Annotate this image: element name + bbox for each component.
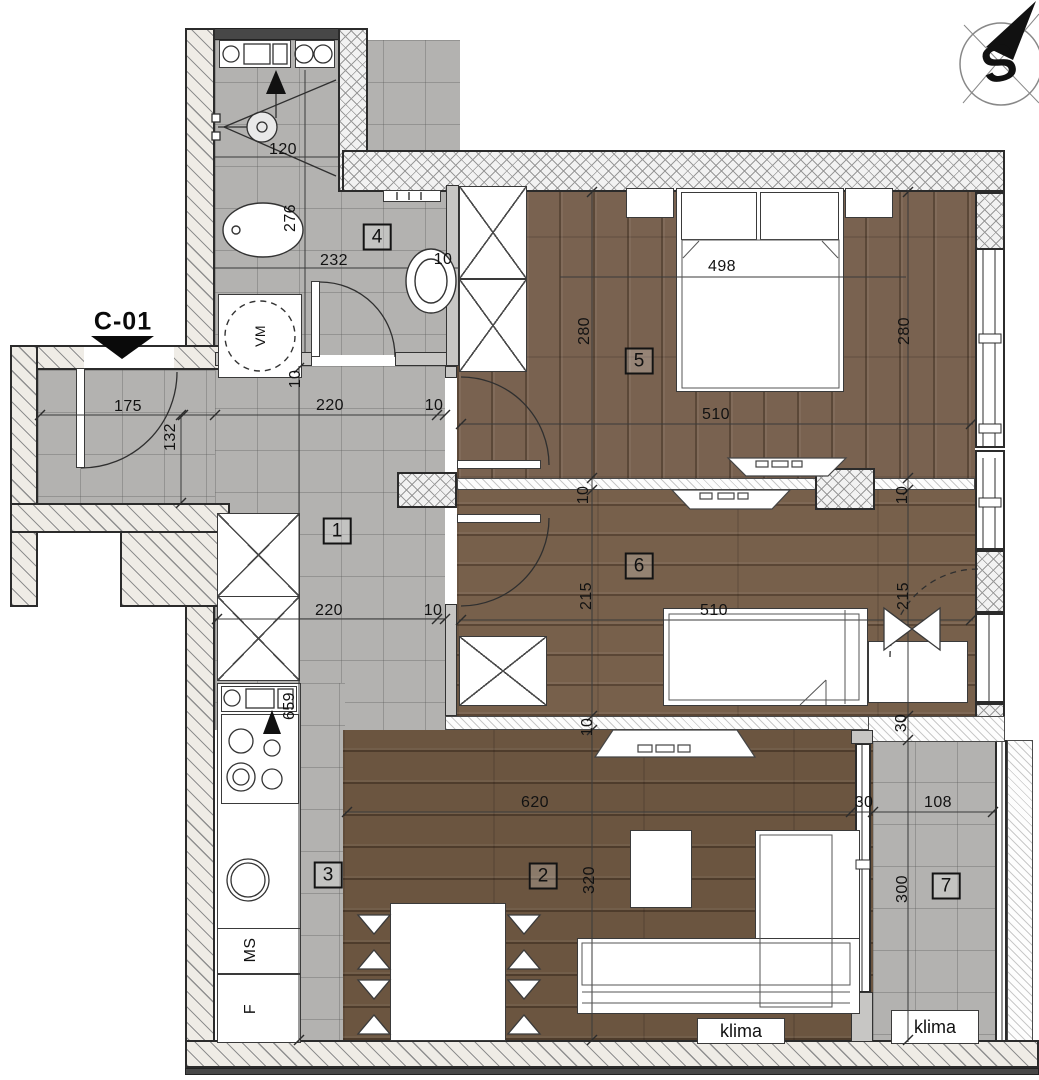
room-label-living: 2: [529, 863, 558, 890]
dim-room5-width: 510: [702, 406, 730, 424]
dim-bath-wall-thk: 10: [287, 370, 305, 389]
dim-balcony-inset: 30: [855, 794, 874, 812]
sofa-details: [582, 835, 850, 1007]
shower-fixture: [212, 70, 336, 176]
dim-balcony-width: 108: [924, 794, 952, 812]
dim-bath-depth: 276: [282, 204, 300, 232]
dim-room6-bottom-right: 30: [893, 714, 911, 733]
plan-linework: [0, 0, 1039, 1080]
room-label-balcony: 7: [932, 873, 961, 900]
dim-hall-top-gap: 10: [425, 397, 444, 415]
room-label-bedroom1: 5: [625, 348, 654, 375]
dim-wall56-right: 10: [894, 486, 912, 505]
kitchen-fixtures: [223, 44, 332, 901]
dim-entry-width: 175: [114, 398, 142, 416]
dim-room6-depth-left: 215: [578, 582, 596, 610]
dim-living-width: 620: [521, 794, 549, 812]
room-label-bedroom2: 6: [625, 553, 654, 580]
dim-kitchen-run: 659: [281, 692, 299, 720]
dim-room5-depth-right: 280: [896, 317, 914, 345]
dim-living-depth: 320: [581, 866, 599, 894]
dim-room6-depth-right: 215: [895, 582, 913, 610]
dim-room5-depth-left: 280: [576, 317, 594, 345]
dim-hall-top-width: 220: [316, 397, 344, 415]
floor-plan-canvas: klima klima: [0, 0, 1039, 1080]
washing-machine-label: VM: [252, 325, 268, 347]
door-arcs: [81, 282, 978, 657]
dim-room6-bottom-thk: 10: [579, 718, 597, 737]
room-label-kitchen: 3: [314, 862, 343, 889]
dim-bath-width: 232: [320, 252, 348, 270]
dim-balcony-depth: 300: [894, 875, 912, 903]
dim-hall-bottom-gap: 10: [424, 602, 443, 620]
dim-entry-depth: 132: [162, 423, 180, 451]
dim-bed-length: 498: [708, 258, 736, 276]
kitchen-cabinet-label: MS: [242, 938, 260, 963]
entrance-label: C-01: [94, 308, 152, 337]
entrance-arrow: [91, 336, 154, 359]
dim-shower-width: 120: [269, 141, 297, 159]
dim-room6-width: 510: [700, 602, 728, 620]
dimension-lines: [40, 70, 995, 1042]
fridge-label: F: [242, 1004, 260, 1014]
window-details: [856, 250, 1002, 1040]
room-label-hall: 1: [323, 518, 352, 545]
dim-hall-bottom-width: 220: [315, 602, 343, 620]
dim-bath-sink-gap: 10: [434, 251, 453, 269]
chairs: [358, 608, 940, 1034]
dim-wall56-left: 10: [575, 486, 593, 505]
room-label-bathroom: 4: [363, 224, 392, 251]
